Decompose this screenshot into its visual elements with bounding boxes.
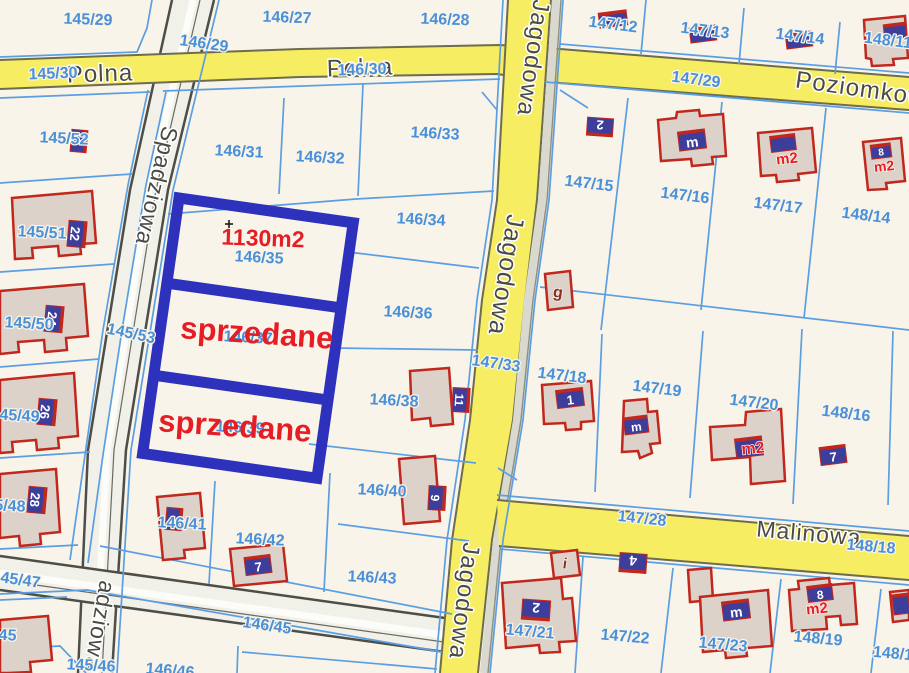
house-number-plate: 7 (244, 554, 272, 576)
house-number-plate: m (623, 415, 649, 435)
house-number-plate: 7 (819, 444, 847, 466)
plate-number: 11 (452, 393, 467, 407)
plate-number: m (630, 419, 642, 434)
building-m2-label: m2 (741, 439, 766, 458)
building-m2-label: m2 (805, 599, 828, 618)
map-canvas[interactable]: 2224262871191m7224m8m8 PolnaPolnaPoziomk… (0, 0, 909, 673)
parcel-number-label: 145/49 (0, 406, 40, 426)
parcel-number-label: 146/41 (157, 514, 207, 534)
plate-number: m (685, 133, 699, 150)
house-number-plate: m (677, 129, 706, 152)
building-m2-label: m2 (775, 149, 798, 168)
parcel-number-label: 146/33 (410, 124, 460, 144)
parcel-number-label: 148/1 (872, 644, 909, 664)
building-m2-label: m2 (873, 157, 895, 175)
parcel-number-label: 146/43 (347, 568, 397, 588)
house-number-plate: 9 (427, 486, 446, 511)
parcel-number-label: 146/34 (396, 210, 446, 230)
parcel-number-label: 145/51 (17, 223, 67, 243)
parcel-number-label: 146/36 (383, 303, 433, 323)
parcel-number-label: 146/42 (235, 530, 285, 550)
parcel-number-label: 145/52 (39, 129, 89, 149)
map-viewport: 2224262871191m7224m8m8 PolnaPolnaPoziomk… (0, 0, 909, 673)
parcel-number-label: 145/45 (0, 625, 17, 645)
parcel-number-label: 146/40 (357, 481, 407, 501)
sold-annotation-label: 1130m2 (221, 224, 305, 253)
plate-number: 2 (531, 600, 540, 617)
house-number-plate: 1 (556, 387, 585, 409)
house-number-plate: m (721, 599, 750, 622)
house-number-plate: 28 (26, 486, 47, 514)
house-number-plate: 2 (586, 117, 613, 137)
parcel-number-label: 146/30 (337, 61, 387, 80)
parcel-number-label: 145/30 (28, 65, 78, 84)
house-number-plate: 4 (619, 552, 647, 573)
parcel-number-label: 145/50 (4, 314, 54, 334)
house-number-plate: 22 (66, 220, 87, 248)
parcel-number-label: 146/38 (369, 391, 419, 411)
parcel-number-label: 146/32 (295, 148, 345, 168)
parcel-number-label: 145/46 (66, 656, 116, 673)
house-number-plate: 11 (451, 388, 470, 413)
plate-number: 9 (428, 494, 442, 502)
plate-number: m (729, 603, 743, 620)
house-number-plate (892, 593, 909, 615)
parcel-number-label: 146/28 (420, 11, 470, 30)
plate-number: 22 (67, 226, 83, 242)
plate-number: 28 (27, 492, 43, 508)
parcel-number-label: 146/31 (214, 142, 264, 162)
parcel-number-label: 145/29 (63, 11, 113, 30)
plate-number: 2 (596, 117, 604, 132)
parcel-number-label: 146/27 (262, 9, 312, 28)
plate-number: 4 (628, 553, 637, 570)
parcel-number-label: 145/48 (0, 496, 26, 516)
house-number-plate: 2 (521, 599, 550, 621)
